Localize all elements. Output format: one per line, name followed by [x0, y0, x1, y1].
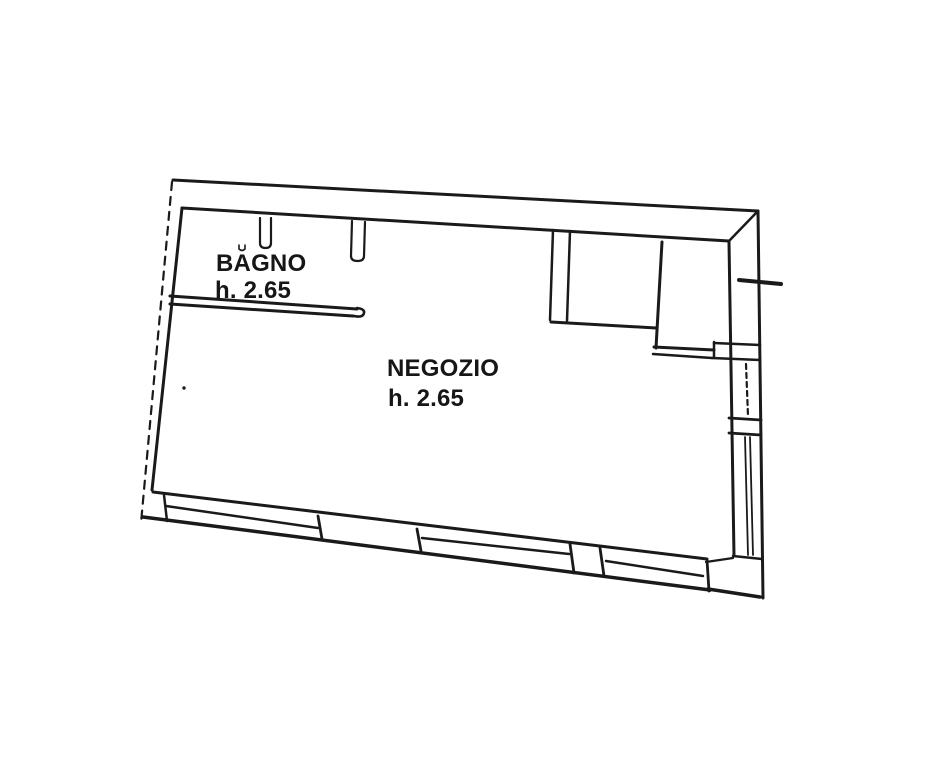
door-jamb-stub-1	[260, 218, 271, 248]
top-inner-wall	[182, 208, 729, 241]
closet-left-wall	[656, 242, 662, 348]
bottom-outer-wall	[143, 517, 710, 590]
top-outer-wall	[173, 180, 758, 211]
right-wall-bottom-divider	[733, 556, 762, 559]
top-right-diagonal	[729, 212, 757, 241]
right-outer-wall	[758, 211, 763, 598]
storefront-mullion-2	[417, 529, 421, 551]
storefront-mullion-1	[318, 516, 322, 539]
closet-bottom-line-a	[654, 347, 714, 350]
scan-dot-artifact	[182, 386, 185, 389]
storefront-pier-left	[570, 544, 574, 573]
right-wall-tick	[739, 280, 781, 284]
room-height-bagno: h. 2.65	[215, 279, 291, 303]
scanned-floorplan-page: BAGNO h. 2.65 NEGOZIO h. 2.65	[0, 0, 934, 760]
room-height-negozio: h. 2.65	[388, 387, 464, 411]
right-pier-top	[729, 418, 761, 420]
storefront-pier-right	[600, 548, 604, 576]
right-wall-divider-b	[712, 358, 760, 360]
storefront-left-jamb	[164, 495, 167, 521]
window-b-glazing-1	[745, 437, 748, 555]
closet-bottom-line-b	[653, 354, 712, 358]
right-pier-bottom	[729, 433, 761, 435]
window-a-glazing	[746, 364, 748, 416]
corner-block-connector	[706, 558, 733, 562]
room-label-negozio: NEGOZIO	[387, 357, 499, 381]
window-b-glazing-2	[750, 437, 753, 555]
right-wall-divider-a	[714, 343, 760, 345]
niche-bottom-wall	[551, 322, 656, 328]
door-jamb-stub-2	[351, 221, 365, 261]
bottom-outer-corner	[708, 589, 760, 597]
partition-right-line	[567, 231, 570, 321]
partition-left-line	[550, 230, 553, 320]
storefront-window3-glazing	[606, 561, 703, 576]
right-inner-wall	[729, 242, 734, 556]
bottom-inner-wall	[153, 492, 707, 559]
corner-block-vertical	[707, 560, 709, 591]
room-label-bagno: BAGNO	[216, 252, 306, 276]
